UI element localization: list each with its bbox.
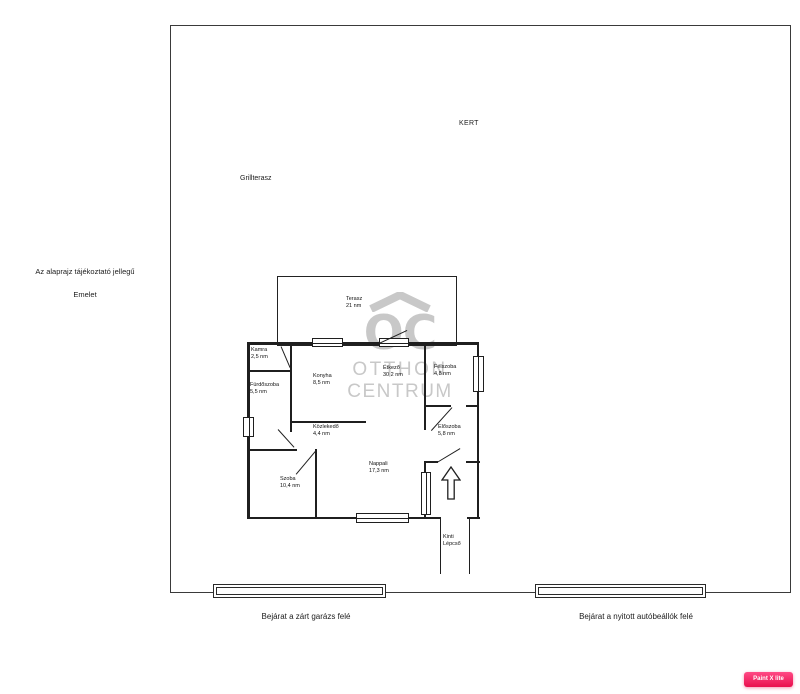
wall	[290, 370, 292, 432]
entrance-garage-label: Bejárat a zárt garázs felé	[224, 612, 388, 621]
window	[473, 356, 484, 392]
room-label-szoba: Szoba10,4 nm	[280, 476, 300, 489]
window	[379, 338, 409, 347]
room-label-kamra: Kamra2,5 nm	[251, 347, 268, 360]
outdoor-stair-wall	[440, 519, 441, 574]
room-label-etkezo: Étkező30,2 nm	[383, 365, 403, 378]
room-label-furdoszoba: Fürdőszoba5,5 nm	[250, 382, 279, 395]
gate-left	[213, 584, 386, 598]
wall	[247, 449, 297, 451]
window	[421, 472, 431, 515]
entrance-up-arrow-icon	[441, 466, 461, 500]
entrance-carport-label: Bejárat a nyitott autóbeállók felé	[554, 612, 718, 621]
grill-terrace-label: Grillterasz	[240, 175, 272, 182]
garden-label: KERT	[459, 120, 479, 127]
wall	[247, 517, 441, 520]
window	[356, 513, 409, 523]
window	[312, 338, 343, 347]
room-label-felszoba: Félszoba4,8 nm	[434, 364, 456, 377]
wall	[424, 405, 451, 407]
wall	[290, 421, 366, 423]
room-label-nappali: Nappali17,3 nm	[369, 461, 389, 474]
wall	[424, 342, 426, 430]
room-label-terasz: Terasz21 nm	[346, 296, 362, 309]
wall	[315, 449, 317, 519]
wall	[247, 370, 291, 372]
wall	[466, 461, 480, 463]
room-label-kozlekedo: Közlekedő4,4 nm	[313, 424, 339, 437]
wall	[247, 342, 479, 345]
terrace-outline	[277, 276, 457, 346]
wall	[290, 342, 292, 373]
paint-x-lite-badge: Paint X lite	[744, 672, 793, 687]
wall	[424, 461, 426, 473]
outdoor-stairs-label: KintiLépcső	[443, 534, 461, 547]
room-label-eloszoba: Előszoba5,8 nm	[438, 424, 461, 437]
floorplan-canvas: KERT Grillterasz Az alaprajz tájékoztató…	[0, 0, 800, 694]
window	[243, 417, 254, 437]
room-label-konyha: Konyha8,5 nm	[313, 373, 332, 386]
property-boundary	[170, 25, 791, 593]
gate-right	[535, 584, 706, 598]
watermark-line3: CENTRUM	[335, 381, 465, 402]
floor-level-label: Emelet	[10, 290, 160, 299]
wall	[466, 405, 479, 407]
outdoor-stair-wall	[469, 519, 470, 574]
disclaimer-label: Az alaprajz tájékoztató jellegű	[10, 267, 160, 276]
